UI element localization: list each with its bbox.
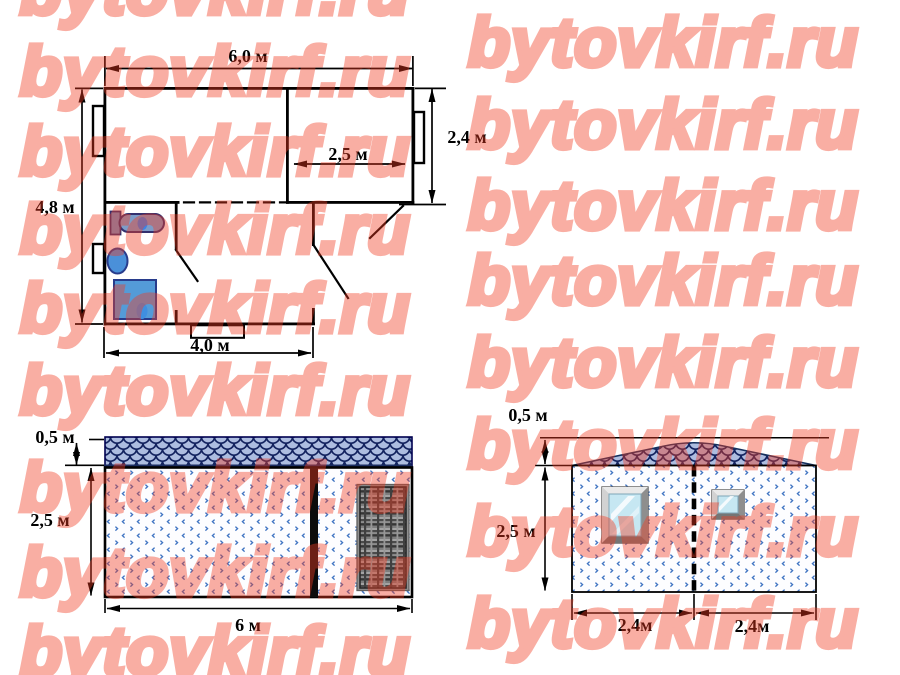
svg-text:bytovkirf.ru: bytovkirf.ru	[20, 352, 410, 429]
svg-text:bytovkirf.ru: bytovkirf.ru	[468, 86, 858, 163]
svg-text:bytovkirf.ru: bytovkirf.ru	[468, 242, 858, 319]
svg-text:bytovkirf.ru: bytovkirf.ru	[468, 493, 858, 570]
svg-text:bytovkirf.ru: bytovkirf.ru	[468, 4, 858, 81]
svg-text:bytovkirf.ru: bytovkirf.ru	[468, 406, 858, 483]
svg-text:bytovkirf.ru: bytovkirf.ru	[20, 613, 410, 675]
svg-text:bytovkirf.ru: bytovkirf.ru	[20, 270, 410, 347]
svg-text:bytovkirf.ru: bytovkirf.ru	[468, 167, 858, 244]
svg-text:bytovkirf.ru: bytovkirf.ru	[20, 449, 410, 526]
svg-text:bytovkirf.ru: bytovkirf.ru	[20, 33, 410, 110]
svg-text:bytovkirf.ru: bytovkirf.ru	[468, 324, 858, 401]
svg-text:0,5 м: 0,5 м	[35, 427, 74, 447]
svg-text:bytovkirf.ru: bytovkirf.ru	[20, 534, 410, 611]
svg-text:bytovkirf.ru: bytovkirf.ru	[20, 113, 410, 190]
svg-text:bytovkirf.ru: bytovkirf.ru	[20, 191, 410, 268]
svg-text:bytovkirf.ru: bytovkirf.ru	[468, 585, 858, 662]
svg-text:bytovkirf.ru: bytovkirf.ru	[20, 0, 410, 29]
